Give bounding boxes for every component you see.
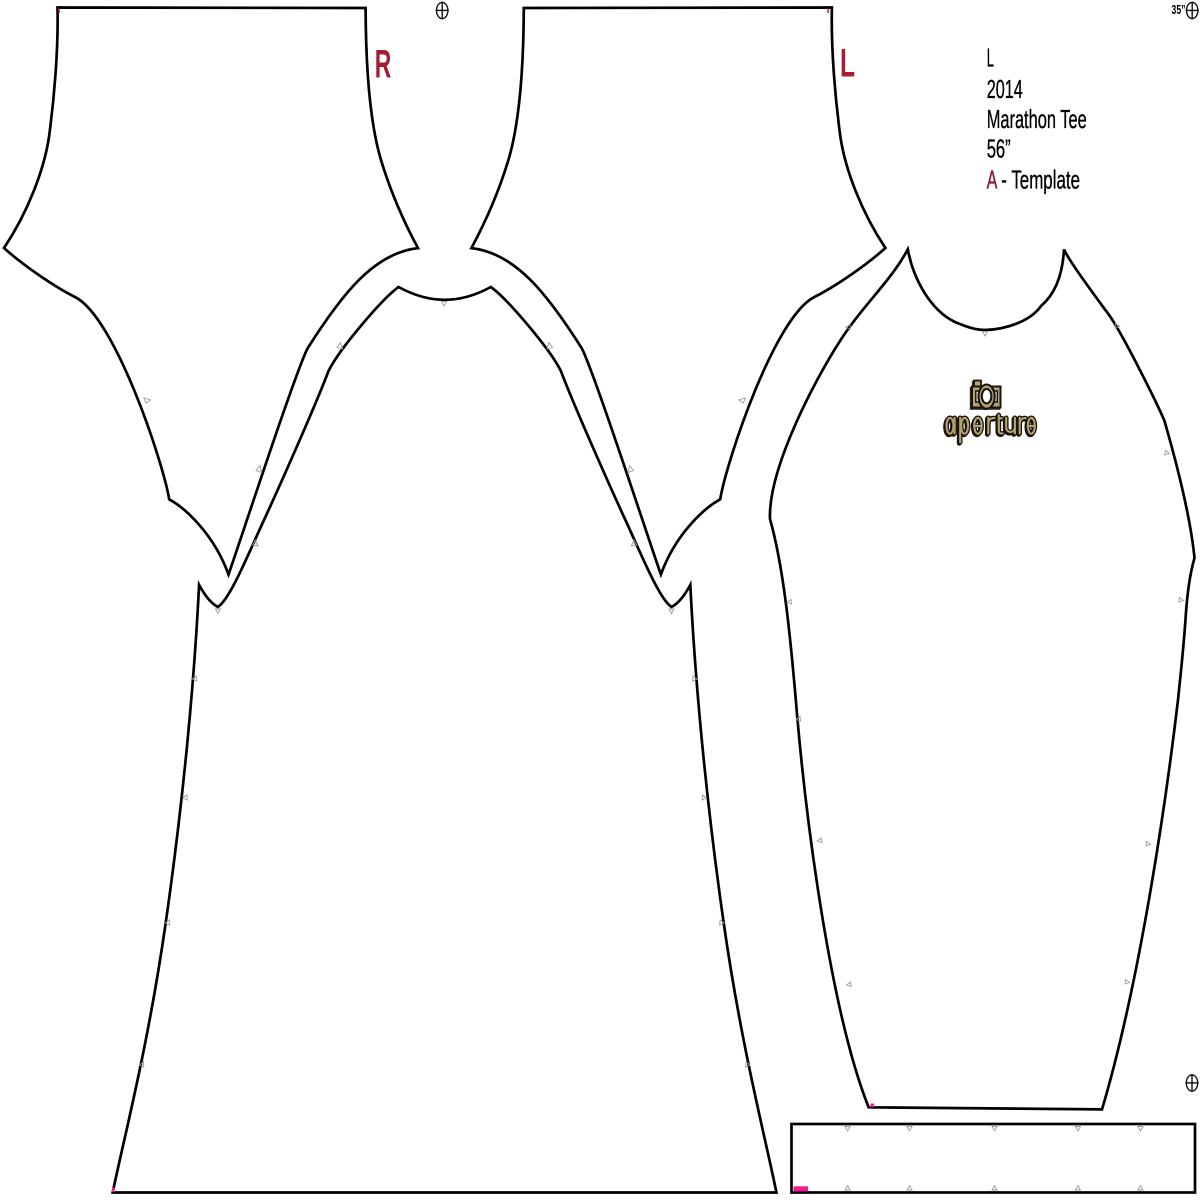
- svg-text:R: R: [375, 43, 392, 87]
- svg-text:A: A: [987, 164, 998, 194]
- svg-text:L: L: [987, 43, 994, 73]
- svg-text:56”: 56”: [987, 133, 1011, 163]
- svg-text:35”: 35”: [1172, 3, 1186, 17]
- svg-text:L: L: [840, 42, 855, 86]
- svg-text:2014: 2014: [987, 74, 1023, 104]
- svg-text:Marathon Tee: Marathon Tee: [987, 104, 1087, 134]
- svg-text:- Template: - Template: [1001, 164, 1080, 194]
